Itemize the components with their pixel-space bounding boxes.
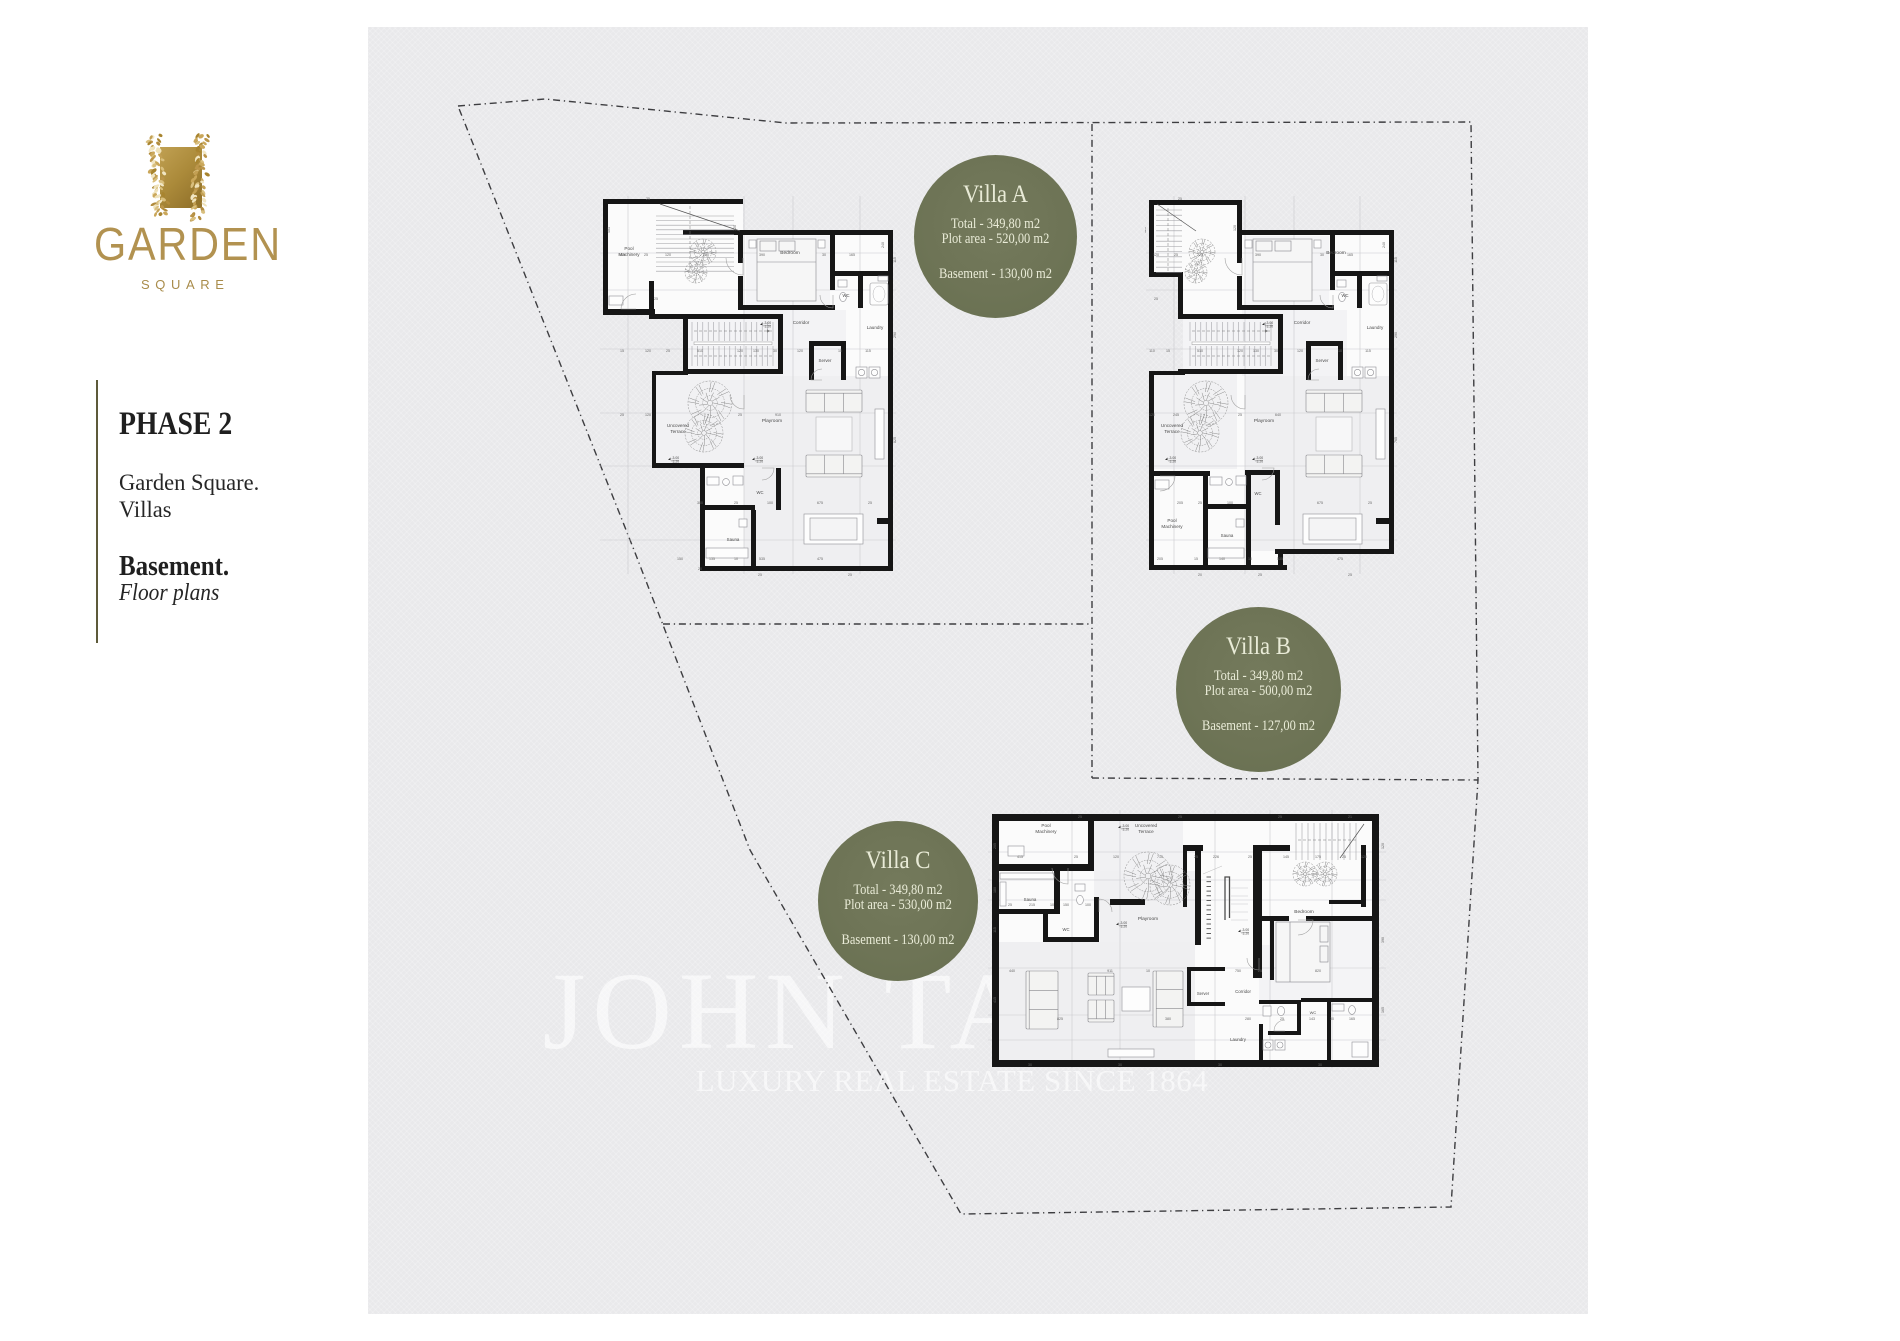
svg-text:Server: Server xyxy=(1197,991,1210,996)
svg-text:30: 30 xyxy=(1118,1063,1122,1067)
svg-text:115: 115 xyxy=(993,927,997,933)
svg-text:220: 220 xyxy=(1197,253,1203,257)
svg-text:911: 911 xyxy=(1107,969,1113,973)
svg-text:120: 120 xyxy=(1113,855,1119,859)
svg-text:130: 130 xyxy=(753,349,759,353)
svg-text:175: 175 xyxy=(1315,855,1321,859)
svg-text:Sauna: Sauna xyxy=(1024,897,1037,902)
svg-text:20: 20 xyxy=(1198,573,1202,577)
svg-text:135: 135 xyxy=(709,557,715,561)
svg-text:825: 825 xyxy=(893,437,897,443)
svg-text:10: 10 xyxy=(734,557,738,561)
svg-text:Bedroom: Bedroom xyxy=(1326,250,1345,256)
svg-text:120: 120 xyxy=(665,253,671,257)
svg-text:226: 226 xyxy=(1213,855,1219,859)
svg-text:825: 825 xyxy=(1057,1017,1063,1021)
svg-text:Uncovered: Uncovered xyxy=(1135,823,1158,828)
svg-text:25: 25 xyxy=(1198,501,1202,505)
svg-text:Playroom: Playroom xyxy=(1138,916,1158,922)
svg-text:640: 640 xyxy=(1275,413,1281,417)
svg-text:390: 390 xyxy=(759,253,765,257)
svg-text:30: 30 xyxy=(1318,1063,1322,1067)
svg-text:205: 205 xyxy=(1177,501,1183,505)
svg-text:Laundry: Laundry xyxy=(867,325,884,330)
svg-text:10: 10 xyxy=(1050,903,1054,907)
svg-text:120: 120 xyxy=(645,413,651,417)
svg-text:510: 510 xyxy=(697,349,703,353)
svg-text:WC: WC xyxy=(1342,293,1349,298)
svg-text:180: 180 xyxy=(993,887,997,893)
svg-text:Machinery: Machinery xyxy=(1035,829,1057,834)
svg-text:25: 25 xyxy=(1342,855,1346,859)
svg-text:115: 115 xyxy=(1394,257,1398,263)
svg-text:120: 120 xyxy=(737,349,743,353)
svg-text:380: 380 xyxy=(1165,1017,1171,1021)
svg-text:Pool: Pool xyxy=(1167,518,1176,523)
svg-text:120: 120 xyxy=(1149,413,1155,417)
svg-text:440: 440 xyxy=(1009,969,1015,973)
svg-text:120: 120 xyxy=(1153,253,1159,257)
svg-text:150: 150 xyxy=(677,557,683,561)
svg-text:30: 30 xyxy=(1274,349,1278,353)
svg-text:25: 25 xyxy=(1154,297,1158,301)
svg-text:25: 25 xyxy=(1008,903,1012,907)
svg-text:245: 245 xyxy=(1173,413,1179,417)
svg-text:30: 30 xyxy=(1330,1017,1334,1021)
svg-text:Bedroom: Bedroom xyxy=(1294,909,1313,915)
svg-text:Pool: Pool xyxy=(624,246,633,251)
svg-text:25: 25 xyxy=(646,197,650,201)
svg-text:10: 10 xyxy=(838,349,842,353)
svg-text:25: 25 xyxy=(1174,253,1178,257)
svg-text:165: 165 xyxy=(1349,1017,1355,1021)
svg-text:120: 120 xyxy=(1361,855,1367,859)
svg-text:240: 240 xyxy=(881,242,885,248)
svg-text:25: 25 xyxy=(848,573,852,577)
svg-text:25: 25 xyxy=(734,501,738,505)
svg-text:Laundry: Laundry xyxy=(1230,1037,1247,1042)
svg-text:120: 120 xyxy=(1297,349,1303,353)
svg-text:120: 120 xyxy=(1145,227,1147,233)
svg-text:25: 25 xyxy=(1280,1017,1284,1021)
svg-text:Sauna: Sauna xyxy=(1221,533,1234,538)
svg-text:25: 25 xyxy=(758,573,762,577)
svg-text:510: 510 xyxy=(1197,349,1203,353)
svg-text:25: 25 xyxy=(1178,815,1182,819)
svg-text:415: 415 xyxy=(1017,855,1023,859)
svg-text:Laundry: Laundry xyxy=(1367,325,1384,330)
svg-text:25: 25 xyxy=(654,297,658,301)
svg-text:15: 15 xyxy=(1166,349,1170,353)
svg-text:Bedroom: Bedroom xyxy=(780,250,799,256)
svg-text:165: 165 xyxy=(849,253,855,257)
svg-text:30: 30 xyxy=(773,349,777,353)
svg-text:401: 401 xyxy=(607,227,611,233)
svg-text:300: 300 xyxy=(697,501,703,505)
svg-text:25: 25 xyxy=(1238,413,1242,417)
svg-text:25: 25 xyxy=(868,501,872,505)
svg-text:390: 390 xyxy=(1381,937,1385,943)
svg-text:115: 115 xyxy=(865,349,871,353)
svg-text:Terrace: Terrace xyxy=(670,429,686,434)
svg-text:Terrace: Terrace xyxy=(1164,429,1180,434)
svg-text:Server: Server xyxy=(819,358,832,363)
svg-text:WC: WC xyxy=(757,490,764,495)
svg-text:Playroom: Playroom xyxy=(762,418,782,424)
svg-text:115: 115 xyxy=(1365,349,1371,353)
svg-text:475: 475 xyxy=(817,557,823,561)
svg-text:Sauna: Sauna xyxy=(727,537,740,542)
svg-text:750: 750 xyxy=(1235,969,1241,973)
svg-text:120: 120 xyxy=(1381,843,1385,849)
svg-text:415: 415 xyxy=(993,997,997,1003)
svg-text:290: 290 xyxy=(1394,332,1398,338)
svg-text:475: 475 xyxy=(1337,557,1343,561)
svg-text:220: 220 xyxy=(703,253,709,257)
svg-text:WC: WC xyxy=(843,293,850,298)
svg-text:WC: WC xyxy=(1255,491,1262,496)
svg-text:30: 30 xyxy=(1218,1063,1222,1067)
svg-text:390: 390 xyxy=(1255,253,1261,257)
svg-text:100: 100 xyxy=(1227,501,1233,505)
svg-text:21: 21 xyxy=(1348,815,1352,819)
svg-text:910: 910 xyxy=(775,413,781,417)
svg-text:25: 25 xyxy=(1178,197,1182,201)
svg-text:205: 205 xyxy=(993,843,997,849)
svg-text:30: 30 xyxy=(1320,253,1324,257)
svg-text:10: 10 xyxy=(1146,969,1150,973)
svg-text:25: 25 xyxy=(738,413,742,417)
svg-text:Uncovered: Uncovered xyxy=(1161,423,1184,428)
svg-text:280: 280 xyxy=(1245,1017,1251,1021)
svg-text:30: 30 xyxy=(1028,1063,1032,1067)
svg-text:25: 25 xyxy=(1348,573,1352,577)
svg-text:165: 165 xyxy=(1347,253,1353,257)
svg-text:20: 20 xyxy=(698,567,702,571)
svg-text:100: 100 xyxy=(1085,903,1091,907)
svg-text:25: 25 xyxy=(1194,855,1198,859)
svg-text:205: 205 xyxy=(1157,557,1163,561)
svg-text:25: 25 xyxy=(620,413,624,417)
svg-text:130: 130 xyxy=(1253,349,1259,353)
svg-text:240: 240 xyxy=(1382,242,1386,248)
svg-text:100: 100 xyxy=(767,501,773,505)
svg-text:145: 145 xyxy=(1283,855,1289,859)
svg-text:25: 25 xyxy=(1278,815,1282,819)
svg-text:Pool: Pool xyxy=(1041,823,1050,828)
svg-text:25: 25 xyxy=(1368,501,1372,505)
svg-text:150: 150 xyxy=(1063,903,1069,907)
svg-text:115: 115 xyxy=(893,257,897,263)
svg-text:25: 25 xyxy=(1248,855,1252,859)
svg-text:Corridor: Corridor xyxy=(1294,320,1311,325)
svg-text:Playroom: Playroom xyxy=(1254,418,1274,424)
svg-text:120: 120 xyxy=(645,349,651,353)
svg-text:215: 215 xyxy=(1029,903,1035,907)
svg-text:Corridor: Corridor xyxy=(793,320,810,325)
svg-text:120: 120 xyxy=(1237,349,1243,353)
svg-text:25: 25 xyxy=(1078,815,1082,819)
svg-text:10: 10 xyxy=(1248,557,1252,561)
svg-text:290: 290 xyxy=(893,332,897,338)
svg-text:715: 715 xyxy=(1157,855,1163,859)
svg-text:120: 120 xyxy=(733,225,737,231)
svg-text:Corridor: Corridor xyxy=(1235,989,1251,994)
svg-text:15: 15 xyxy=(620,349,624,353)
svg-text:765: 765 xyxy=(1394,437,1398,443)
svg-text:165: 165 xyxy=(1381,1007,1385,1013)
svg-text:675: 675 xyxy=(817,501,823,505)
svg-text:675: 675 xyxy=(1317,501,1323,505)
svg-text:120: 120 xyxy=(1233,225,1237,231)
svg-text:Uncovered: Uncovered xyxy=(667,423,690,428)
svg-text:Machinery: Machinery xyxy=(1161,524,1183,529)
svg-text:25: 25 xyxy=(644,253,648,257)
svg-text:143: 143 xyxy=(1309,1017,1315,1021)
svg-text:Terrace: Terrace xyxy=(1138,829,1154,834)
svg-text:25: 25 xyxy=(666,349,670,353)
svg-text:25: 25 xyxy=(1258,969,1262,973)
svg-text:100: 100 xyxy=(619,253,625,257)
svg-text:Server: Server xyxy=(1316,358,1329,363)
svg-text:WC: WC xyxy=(1063,927,1070,932)
svg-text:25: 25 xyxy=(1074,855,1078,859)
svg-text:30: 30 xyxy=(822,253,826,257)
svg-text:15: 15 xyxy=(1194,557,1198,561)
svg-text:25: 25 xyxy=(1258,573,1262,577)
svg-text:WC: WC xyxy=(1310,1010,1317,1015)
svg-text:140: 140 xyxy=(1219,557,1225,561)
svg-text:120: 120 xyxy=(797,349,803,353)
svg-text:10: 10 xyxy=(1338,349,1342,353)
svg-text:535: 535 xyxy=(759,557,765,561)
svg-text:110: 110 xyxy=(1149,349,1155,353)
svg-text:820: 820 xyxy=(1315,969,1321,973)
svg-text:535: 535 xyxy=(1277,557,1283,561)
